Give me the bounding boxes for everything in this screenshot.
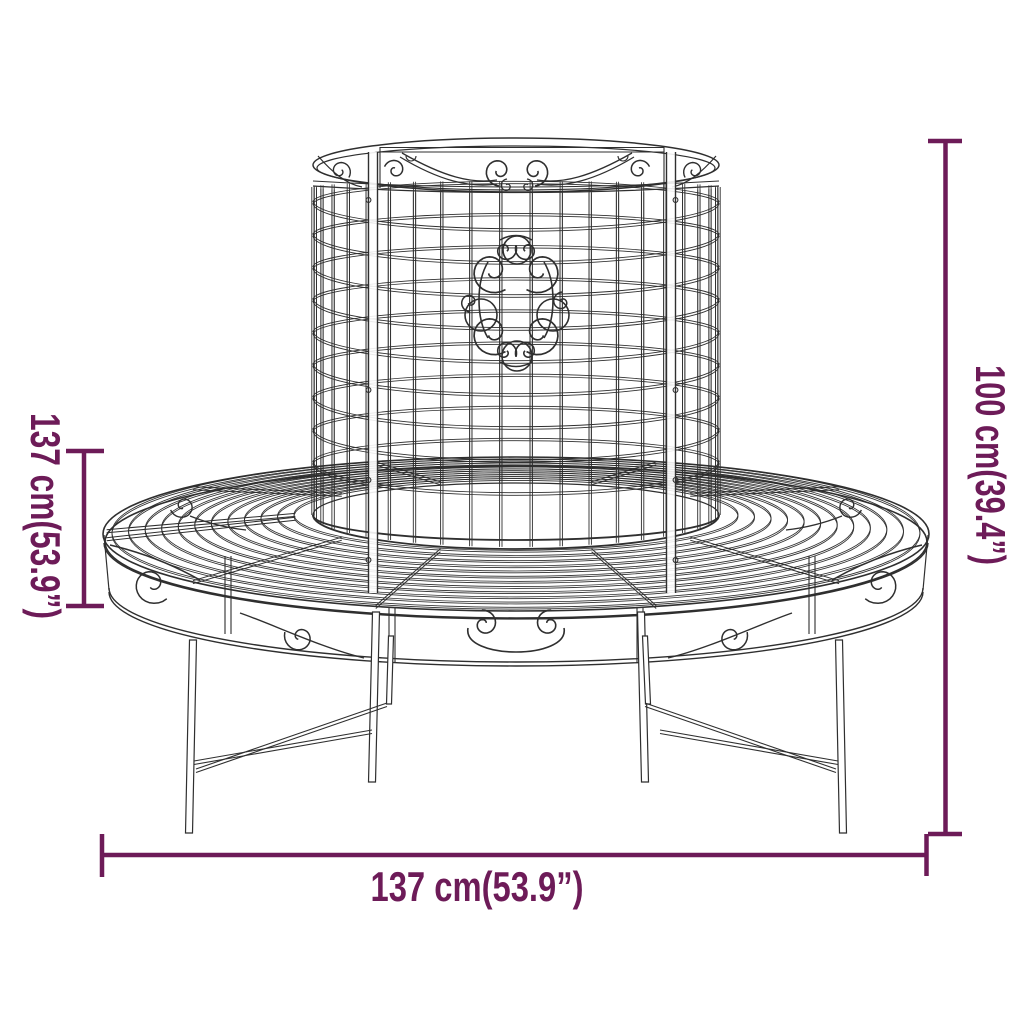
svg-text:137 cm(53.9”): 137 cm(53.9”) xyxy=(22,413,69,619)
svg-text:137 cm(53.9”): 137 cm(53.9”) xyxy=(371,863,584,910)
svg-text:100 cm(39.4”): 100 cm(39.4”) xyxy=(967,365,1014,565)
